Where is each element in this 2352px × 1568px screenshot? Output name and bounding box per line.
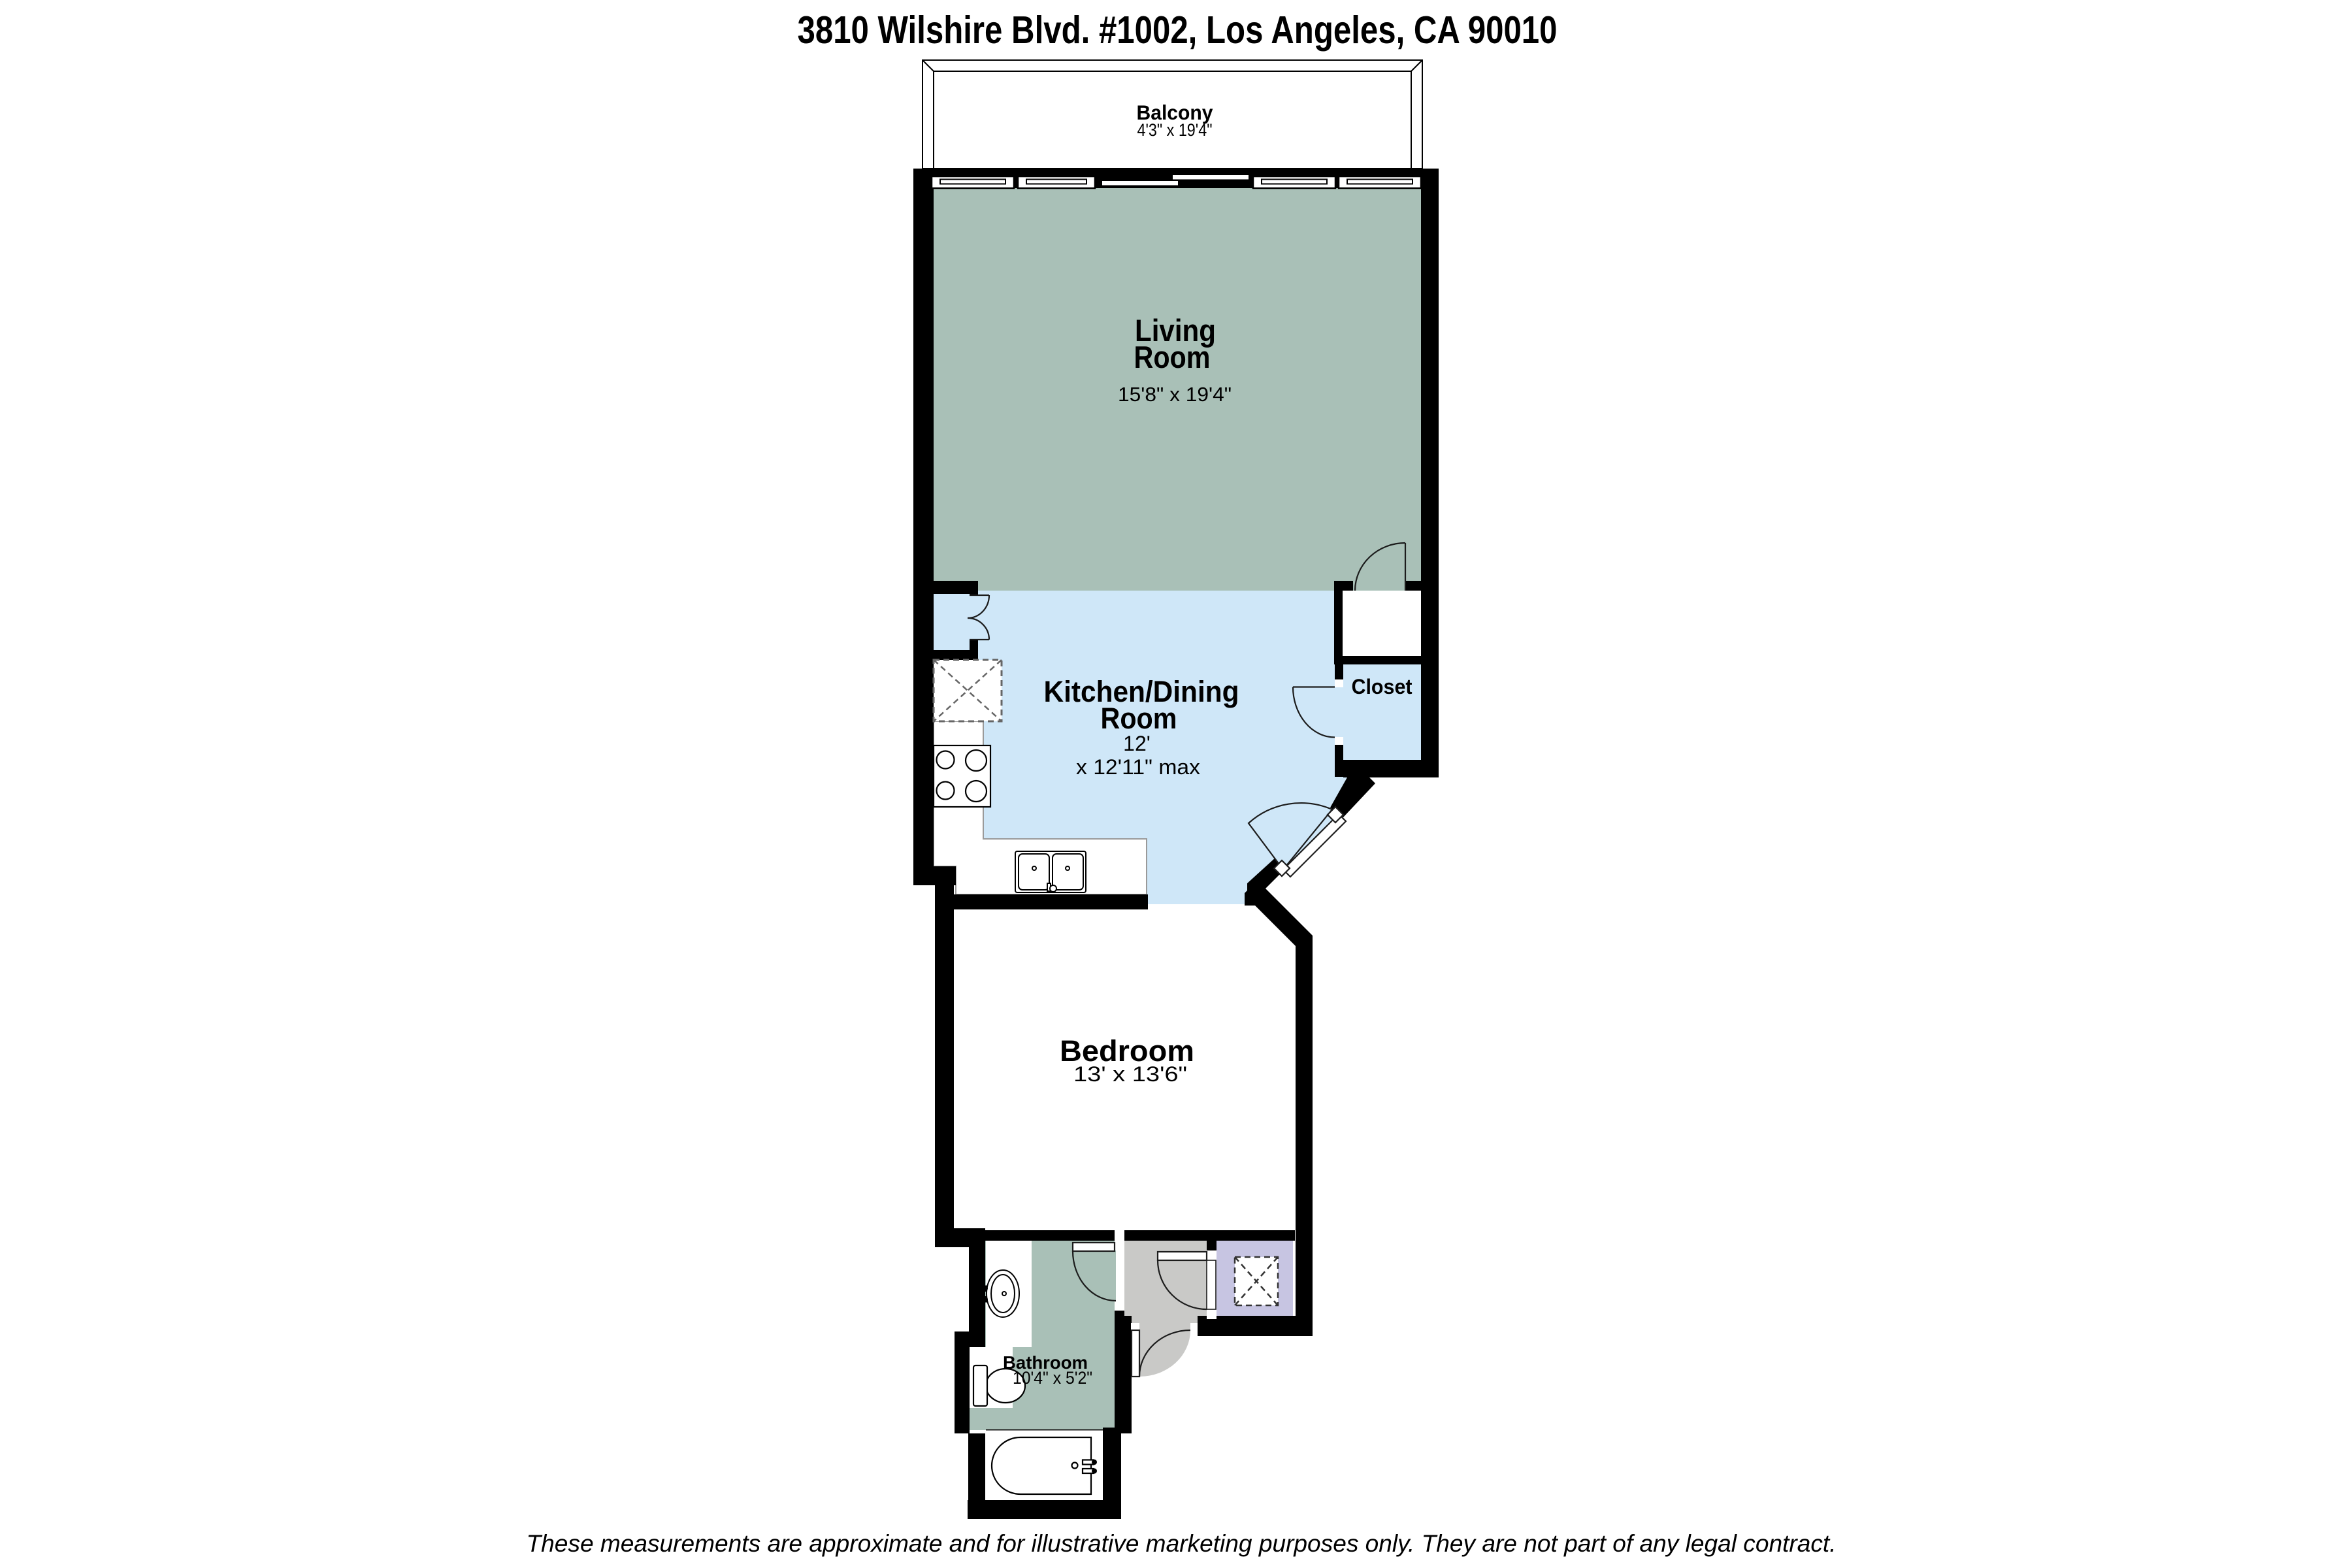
svg-text:13' x 13'6": 13' x 13'6" — [1073, 1062, 1187, 1086]
svg-text:12': 12' — [1123, 732, 1151, 755]
svg-text:3810 Wilshire Blvd. #1002, Los: 3810 Wilshire Blvd. #1002, Los Angeles, … — [798, 8, 1558, 52]
svg-text:Room: Room — [1101, 702, 1177, 735]
svg-text:15'8" x 19'4": 15'8" x 19'4" — [1118, 383, 1232, 406]
svg-text:Room: Room — [1134, 340, 1211, 374]
svg-text:x 12'11" max: x 12'11" max — [1076, 755, 1200, 779]
svg-text:4'3" x 19'4": 4'3" x 19'4" — [1137, 120, 1213, 140]
svg-text:Closet: Closet — [1352, 675, 1413, 698]
svg-text:10'4" x 5'2": 10'4" x 5'2" — [1013, 1368, 1092, 1388]
svg-text:These measurements are approxi: These measurements are approximate and f… — [527, 1530, 1837, 1557]
